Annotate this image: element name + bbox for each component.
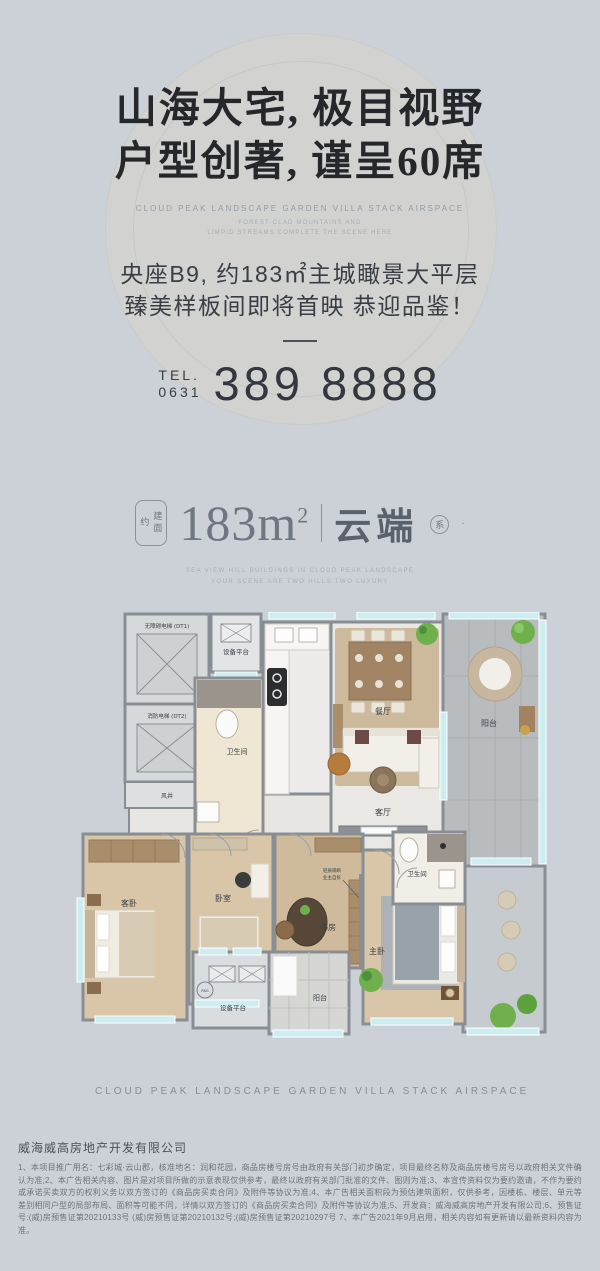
nightstand [87, 982, 101, 994]
study-area [275, 834, 365, 968]
wardrobe [193, 838, 247, 850]
storage-unit [273, 956, 297, 996]
area-superscript: 2 [297, 502, 309, 527]
label-bathroom-2: 卫生间 [407, 869, 427, 878]
headline-line1: 山海大宅, 极目视野 [0, 82, 600, 135]
balcony-bottom-area [269, 952, 349, 1034]
kitchen-sink [299, 628, 317, 642]
series-badge: 系 [430, 515, 449, 534]
banner-vertical-divider [321, 504, 322, 542]
area-banner-row: 建面约 183m2 云端 系 · [0, 494, 600, 552]
label-living: 客厅 [375, 807, 391, 817]
bathroom-2-area [393, 832, 465, 904]
label-partition-note-1: 轻质隔断 [323, 867, 341, 874]
hero-section: 山海大宅, 极目视野 户型创著, 谨呈60席 CLOUD PEAK LANDSC… [0, 82, 600, 411]
study-desk [287, 898, 327, 946]
label-guest-bedroom: 客卧 [121, 898, 137, 908]
developer-company: 威海威高房地产开发有限公司 [18, 1139, 187, 1156]
label-rsg: RSG [201, 989, 209, 993]
plant [359, 968, 383, 992]
tagline-line2: 臻美样板间即将首映 恭迎品鉴！ [0, 290, 600, 322]
label-bathroom-1: 卫生间 [227, 747, 248, 756]
toilet [400, 838, 418, 862]
tel-area-code: 0631 [158, 384, 201, 401]
area-value: 183m2 [179, 494, 309, 552]
study-chair [276, 921, 294, 939]
dining-table [349, 642, 411, 700]
shower-area [427, 834, 465, 862]
sink [197, 802, 219, 822]
tel-label: TEL. [158, 367, 201, 384]
footer-divider: CLOUD PEAK LANDSCAPE GARDEN VILLA STACK … [85, 1086, 515, 1097]
wardrobe [89, 840, 179, 862]
legal-disclaimer: 1、本项目推广用名：七彩城·云山郡，核准地名：润和花园，商品房楼号房号由政府有关… [18, 1162, 582, 1237]
series-dot: · [461, 518, 464, 529]
guest-bedroom-area [83, 834, 187, 1020]
label-equip-bottom: 设备平台 [220, 1003, 246, 1012]
shower-area [197, 680, 261, 708]
toilet [216, 710, 238, 738]
headline-line2: 户型创著, 谨呈60席 [0, 135, 600, 188]
banner-english-line2: YOUR SCENE ARE TWO HILLS TWO LUXURY [0, 577, 600, 588]
hero-divider-dash [283, 340, 317, 342]
stool [498, 891, 516, 909]
banner-english-tiny: SEA VIEW HILL BUILDINGS IN CLOUD PEAK LA… [0, 566, 600, 588]
hero-english-tiny-line2: LIMPID STREAMS COMPLETE THE SCENE HERE [0, 228, 600, 238]
cabinet [315, 838, 361, 852]
area-banner: 建面约 183m2 云端 系 · SEA VIEW HILL BUILDINGS… [0, 494, 600, 588]
desk-chair [235, 872, 251, 888]
divider-text: CLOUD PEAK LANDSCAPE GARDEN VILLA STACK … [95, 1086, 529, 1097]
equipment-platform-top [211, 614, 261, 679]
master-bed [393, 900, 465, 984]
label-elevator-dt1: 无障碍电梯 (DT1) [145, 622, 190, 630]
hero-english-tiny-line1: FOREST-CLAD MOUNTAINS AND [0, 218, 600, 228]
plant [490, 1003, 516, 1029]
label-wind-shaft: 风井 [161, 792, 173, 800]
stool [498, 953, 516, 971]
phone-number: 389 8888 [214, 356, 442, 411]
dining-living-area [328, 622, 443, 854]
plant [416, 623, 438, 645]
plant [511, 620, 535, 644]
sink [439, 870, 455, 888]
label-equip-top: 设备平台 [223, 647, 249, 656]
label-study: 书房 [320, 922, 336, 932]
area-number: 183m [179, 495, 297, 551]
tagline-line1: 央座B9, 约183㎡主城瞰景大平层 [0, 258, 600, 290]
floorplan: 设备平台 无障碍电梯 (DT1) 消防电梯 (DT2) 风井 卫生间 餐厅 阳台… [75, 612, 548, 1058]
sideboard [333, 704, 343, 748]
area-prefix-capsule: 建面约 [135, 500, 167, 546]
label-balcony-right: 阳台 [481, 718, 497, 728]
hero-english-subtitle: CLOUD PEAK LANDSCAPE GARDEN VILLA STACK … [0, 204, 600, 213]
label-bedroom: 卧室 [215, 893, 231, 903]
tagline: 央座B9, 约183㎡主城瞰景大平层 臻美样板间即将首映 恭迎品鉴！ [0, 258, 600, 322]
armchair [328, 753, 350, 775]
desk [251, 864, 269, 898]
label-balcony-bottom: 阳台 [313, 993, 327, 1002]
label-dining: 餐厅 [375, 707, 391, 716]
plant [517, 994, 537, 1014]
poster-page: 山海大宅, 极目视野 户型创著, 谨呈60席 CLOUD PEAK LANDSC… [0, 0, 600, 1271]
label-partition-note-2: 业主自拆 [323, 874, 341, 881]
kitchen-sink [275, 628, 293, 642]
floorplan-svg: 设备平台 无障碍电梯 (DT1) 消防电梯 (DT2) 风井 卫生间 餐厅 阳台… [75, 612, 548, 1058]
label-master-bedroom: 主卧 [369, 946, 385, 956]
label-elevator-dt2: 消防电梯 (DT2) [147, 712, 186, 720]
kitchen [263, 622, 331, 794]
series-name: 云端 [334, 496, 418, 550]
hero-english-tiny: FOREST-CLAD MOUNTAINS AND LIMPID STREAMS… [0, 218, 600, 238]
phone-prefix: TEL. 0631 [158, 367, 201, 401]
banner-english-line1: SEA VIEW HILL BUILDINGS IN CLOUD PEAK LA… [0, 566, 600, 577]
stool [502, 921, 520, 939]
bed [85, 910, 155, 978]
nightstand [87, 894, 101, 906]
desk-plant [300, 905, 310, 915]
phone-block: TEL. 0631 389 8888 [0, 356, 600, 411]
